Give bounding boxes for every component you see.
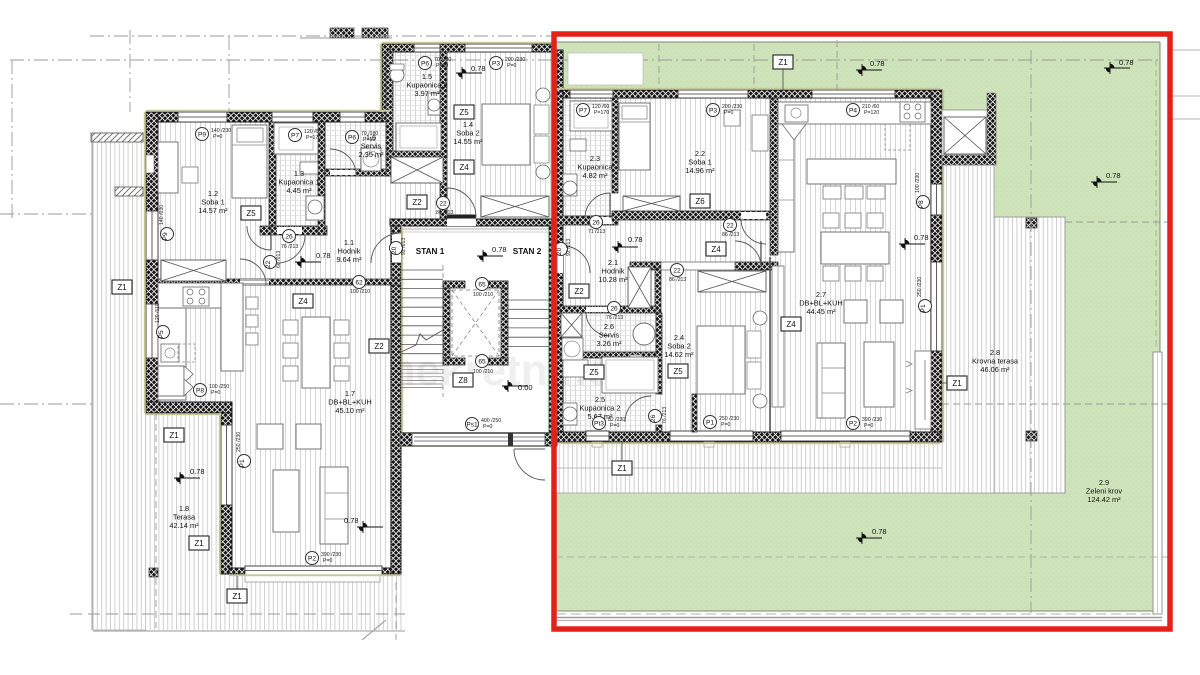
svg-text:14.57 m²: 14.57 m²	[198, 206, 228, 215]
svg-text:P=170: P=170	[594, 110, 609, 116]
svg-text:42.14 m²: 42.14 m²	[169, 521, 199, 530]
svg-text:4.45 m²: 4.45 m²	[286, 186, 312, 195]
svg-text:P2: P2	[308, 555, 316, 562]
svg-text:100 /210: 100 /210	[473, 292, 493, 298]
svg-text:0.78: 0.78	[190, 467, 205, 476]
svg-text:Z5: Z5	[459, 108, 469, 117]
svg-text:9.64 m²: 9.64 m²	[336, 255, 362, 264]
svg-text:14.96 m²: 14.96 m²	[685, 166, 715, 175]
svg-text:STAN 2: STAN 2	[513, 247, 542, 256]
svg-text:P=0: P=0	[507, 63, 516, 69]
svg-text:71 /213: 71 /213	[588, 229, 605, 235]
svg-text:P5: P5	[158, 330, 165, 338]
svg-text:124.42 m²: 124.42 m²	[1087, 495, 1121, 504]
svg-text:P=50: P=50	[363, 137, 375, 143]
svg-text:Z6: Z6	[695, 197, 705, 206]
svg-text:Z4: Z4	[459, 163, 469, 172]
svg-text:P6: P6	[421, 60, 429, 67]
svg-text:Z5: Z5	[673, 367, 683, 376]
svg-text:26: 26	[592, 219, 600, 226]
svg-text:3.26 m²: 3.26 m²	[596, 339, 622, 348]
svg-text:Z1: Z1	[169, 431, 179, 440]
svg-text:2.35 m²: 2.35 m²	[358, 150, 384, 159]
svg-text:0.78: 0.78	[471, 64, 486, 73]
svg-text:Z1: Z1	[194, 539, 204, 548]
svg-text:P4: P4	[849, 107, 857, 114]
svg-text:22: 22	[673, 267, 681, 274]
svg-text:Pt3: Pt3	[594, 420, 604, 427]
svg-text:62: 62	[355, 279, 363, 286]
svg-text:P=0: P=0	[211, 390, 220, 396]
svg-text:Z2: Z2	[374, 342, 384, 351]
svg-text:Z1: Z1	[232, 592, 242, 601]
svg-text:100 /230: 100 /230	[915, 173, 921, 193]
svg-text:Z1: Z1	[778, 58, 788, 67]
svg-text:P1: P1	[706, 419, 714, 426]
svg-text:86 /213: 86 /213	[722, 232, 739, 238]
svg-text:22: 22	[265, 260, 272, 268]
svg-text:P9: P9	[162, 232, 169, 240]
svg-text:Z1: Z1	[117, 283, 127, 292]
svg-text:P6: P6	[348, 134, 356, 141]
svg-text:100 /210: 100 /210	[350, 289, 370, 295]
svg-text:Z5: Z5	[589, 368, 599, 377]
svg-text:P=0: P=0	[864, 423, 873, 429]
svg-text:76 /213: 76 /213	[606, 315, 623, 321]
svg-text:Z5: Z5	[246, 209, 256, 218]
svg-text:45.10 m²: 45.10 m²	[335, 406, 365, 415]
svg-text:44.45 m²: 44.45 m²	[806, 307, 836, 316]
svg-text:92 /013: 92 /013	[566, 239, 572, 256]
svg-text:P=120: P=120	[864, 110, 879, 116]
svg-text:P=0: P=0	[323, 558, 332, 564]
svg-text:10.28 m²: 10.28 m²	[598, 275, 628, 284]
svg-text:20: 20	[391, 246, 398, 254]
svg-text:120 /110: 120 /110	[155, 303, 161, 323]
svg-text:0.78: 0.78	[344, 516, 359, 525]
svg-text:Z1: Z1	[617, 464, 627, 473]
svg-text:Z2: Z2	[412, 198, 422, 207]
svg-text:14.55 m²: 14.55 m²	[453, 137, 483, 146]
svg-text:P3: P3	[492, 60, 500, 67]
svg-text:65: 65	[478, 281, 486, 288]
svg-text:P=0: P=0	[610, 423, 619, 429]
svg-text:P=0: P=0	[213, 134, 222, 140]
svg-text:250 /230: 250 /230	[917, 277, 923, 297]
svg-text:Z4: Z4	[298, 297, 308, 306]
svg-text:86 /213: 86 /213	[669, 277, 686, 283]
svg-text:66 /013: 66 /013	[276, 251, 282, 268]
svg-text:22: 22	[439, 200, 447, 207]
svg-text:0.78: 0.78	[1119, 58, 1134, 67]
svg-text:P8: P8	[196, 387, 204, 394]
svg-text:0.78: 0.78	[316, 251, 331, 260]
svg-text:P=0: P=0	[724, 110, 733, 116]
svg-text:0.78: 0.78	[492, 245, 507, 254]
svg-text:P8: P8	[918, 200, 925, 208]
svg-text:26: 26	[285, 233, 293, 240]
svg-text:P=170: P=170	[306, 135, 321, 141]
svg-text:26: 26	[610, 305, 618, 312]
svg-text:P2: P2	[849, 420, 857, 427]
svg-text:0.78: 0.78	[872, 527, 887, 536]
svg-text:Z8: Z8	[458, 376, 468, 385]
svg-text:0.78: 0.78	[870, 59, 885, 68]
svg-text:26: 26	[650, 414, 657, 422]
svg-text:3.97 m²: 3.97 m²	[414, 89, 440, 98]
svg-text:0.78: 0.78	[914, 233, 929, 242]
svg-text:0.00: 0.00	[518, 383, 533, 392]
svg-text:0.78: 0.78	[1106, 171, 1121, 180]
svg-text:P7: P7	[291, 132, 299, 139]
svg-text:14.62 m²: 14.62 m²	[664, 350, 694, 359]
svg-text:P1: P1	[239, 459, 246, 467]
svg-text:92 /013: 92 /013	[401, 238, 407, 255]
svg-text:P3: P3	[709, 107, 717, 114]
svg-text:140 /030: 140 /030	[159, 205, 165, 225]
svg-text:P1: P1	[920, 304, 927, 312]
svg-text:46.06 m²: 46.06 m²	[980, 365, 1010, 374]
svg-text:STAN 1: STAN 1	[416, 247, 445, 256]
svg-text:4.82 m²: 4.82 m²	[582, 171, 608, 180]
svg-text:P=0: P=0	[721, 422, 730, 428]
svg-text:20: 20	[556, 247, 563, 255]
svg-text:Ps1: Ps1	[466, 421, 478, 428]
svg-text:P9: P9	[198, 131, 206, 138]
svg-text:P=0: P=0	[483, 424, 492, 430]
svg-text:65: 65	[478, 358, 486, 365]
svg-text:76 /213: 76 /213	[281, 244, 298, 250]
svg-text:0.78: 0.78	[628, 235, 643, 244]
svg-text:86 /213: 86 /213	[436, 210, 453, 216]
svg-text:P=50: P=50	[436, 63, 448, 69]
svg-text:22: 22	[726, 222, 734, 229]
svg-text:P7: P7	[579, 107, 587, 114]
svg-text:250 /230: 250 /230	[236, 432, 242, 452]
svg-text:Z1: Z1	[952, 379, 962, 388]
svg-text:Z4: Z4	[711, 245, 721, 254]
svg-text:Z4: Z4	[786, 320, 796, 329]
svg-text:Z2: Z2	[574, 287, 584, 296]
svg-text:100 /210: 100 /210	[473, 369, 493, 375]
svg-text:76 /213: 76 /213	[662, 407, 668, 424]
